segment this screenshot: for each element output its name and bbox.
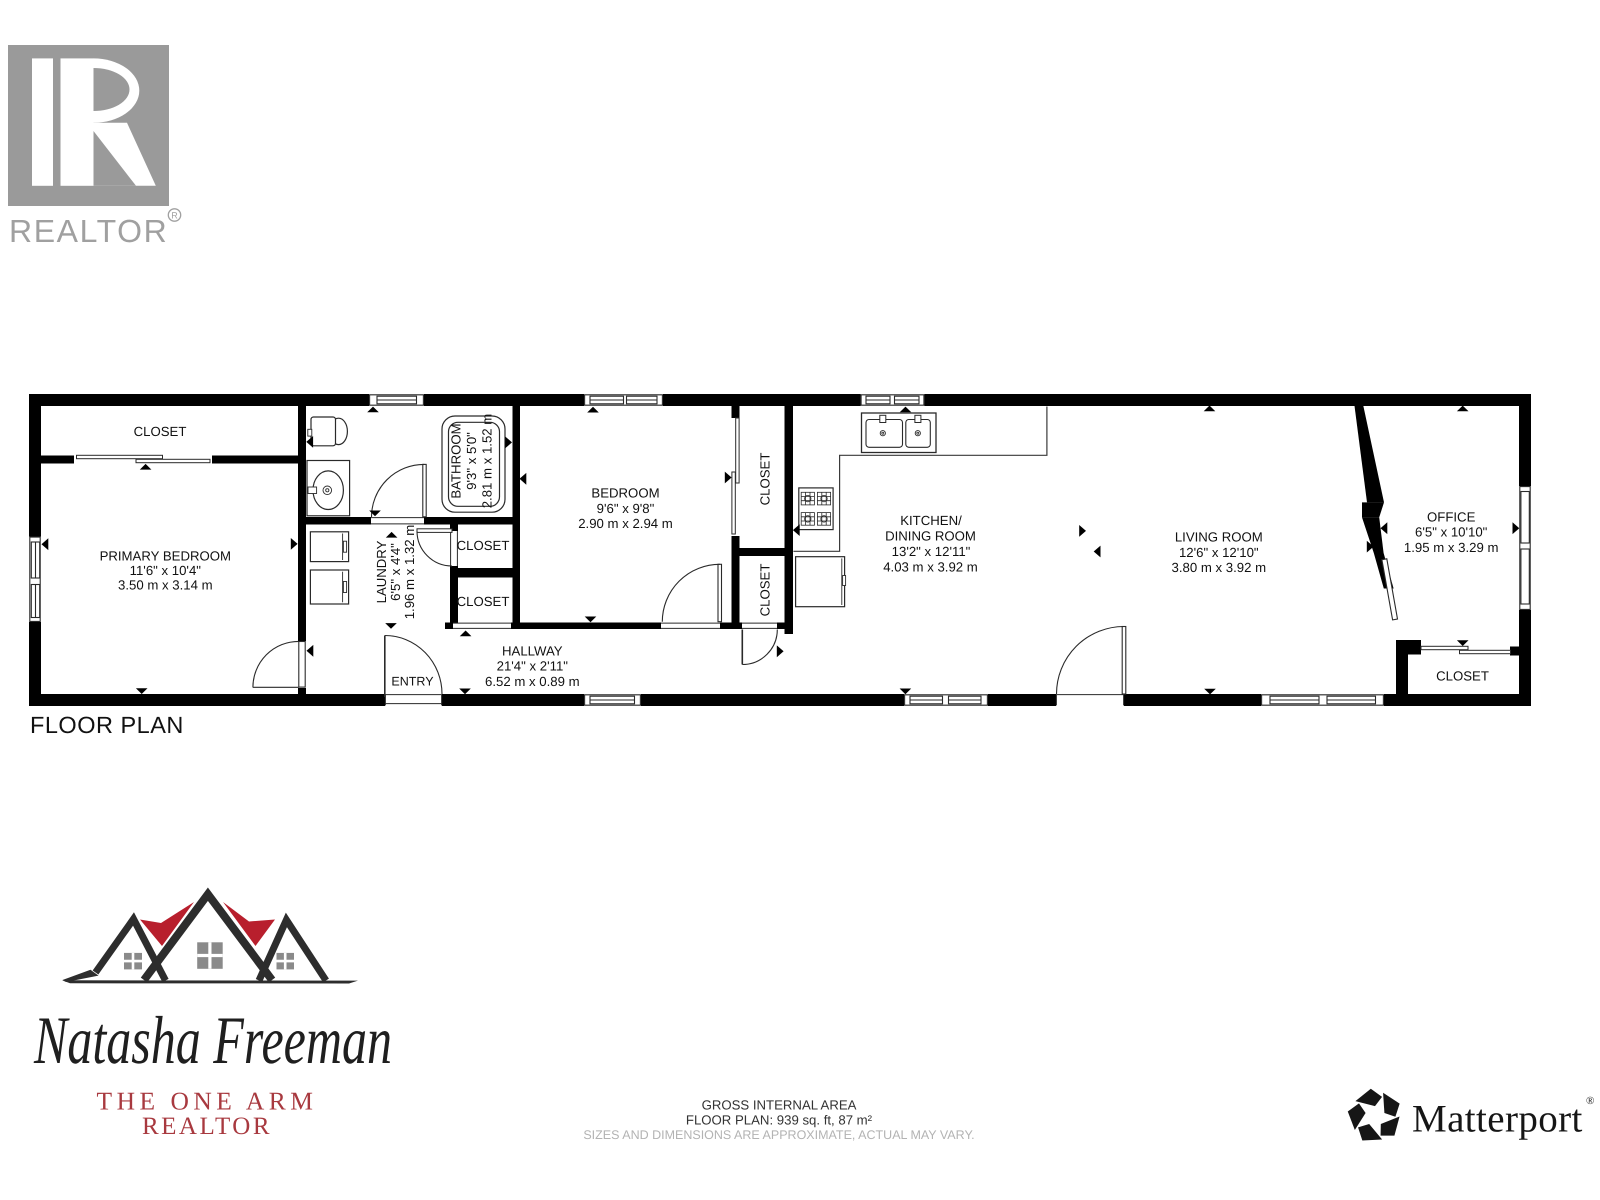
svg-text:6'5" x 4'4": 6'5" x 4'4" (388, 543, 403, 601)
svg-text:13'2" x 12'11": 13'2" x 12'11" (892, 544, 971, 559)
svg-text:KITCHEN/: KITCHEN/ (900, 513, 962, 528)
svg-text:2.81 m x 1.52 m: 2.81 m x 1.52 m (479, 414, 494, 509)
svg-text:1.96 m x 1.32 m: 1.96 m x 1.32 m (402, 525, 417, 620)
svg-text:Matterport: Matterport (1412, 1098, 1583, 1141)
svg-text:PRIMARY BEDROOM: PRIMARY BEDROOM (100, 548, 231, 563)
svg-text:CLOSET: CLOSET (134, 424, 187, 439)
svg-text:®: ® (1586, 1095, 1594, 1107)
svg-text:CLOSET: CLOSET (758, 564, 773, 617)
svg-text:LAUNDRY: LAUNDRY (374, 540, 389, 603)
svg-text:REALTOR: REALTOR (142, 1113, 272, 1140)
svg-text:FLOOR PLAN: FLOOR PLAN (30, 712, 184, 738)
svg-text:BATHROOM: BATHROOM (448, 423, 463, 498)
svg-text:1.95 m x 3.29 m: 1.95 m x 3.29 m (1404, 540, 1499, 555)
svg-text:CLOSET: CLOSET (1436, 669, 1489, 684)
svg-text:CLOSET: CLOSET (758, 453, 773, 506)
svg-text:6.52 m x 0.89 m: 6.52 m x 0.89 m (485, 674, 580, 689)
svg-text:THE ONE ARM: THE ONE ARM (97, 1087, 318, 1116)
svg-text:3.50 m x 3.14 m: 3.50 m x 3.14 m (118, 578, 213, 593)
svg-text:REALTOR: REALTOR (9, 213, 168, 249)
svg-text:3.80 m x 3.92 m: 3.80 m x 3.92 m (1172, 560, 1267, 575)
svg-text:12'6" x 12'10": 12'6" x 12'10" (1179, 545, 1259, 560)
svg-text:CLOSET: CLOSET (457, 538, 510, 553)
svg-text:LIVING ROOM: LIVING ROOM (1175, 530, 1263, 545)
svg-text:CLOSET: CLOSET (457, 594, 510, 609)
svg-text:HALLWAY: HALLWAY (502, 644, 563, 659)
svg-text:9'3" x 5'0": 9'3" x 5'0" (464, 432, 479, 490)
svg-text:SIZES AND DIMENSIONS ARE APPRO: SIZES AND DIMENSIONS ARE APPROXIMATE, AC… (583, 1128, 974, 1142)
svg-text:11'6" x 10'4": 11'6" x 10'4" (130, 563, 202, 578)
svg-text:Natasha Freeman: Natasha Freeman (33, 1002, 392, 1078)
svg-text:OFFICE: OFFICE (1427, 510, 1476, 525)
svg-text:DINING ROOM: DINING ROOM (885, 528, 976, 543)
svg-text:BEDROOM: BEDROOM (591, 486, 659, 501)
svg-text:ENTRY: ENTRY (391, 675, 434, 689)
svg-text:FLOOR PLAN: 939 sq. ft, 87 m²: FLOOR PLAN: 939 sq. ft, 87 m² (686, 1113, 873, 1128)
svg-text:R: R (171, 211, 178, 221)
svg-text:9'6" x 9'8": 9'6" x 9'8" (597, 501, 655, 516)
svg-text:4.03 m x 3.92 m: 4.03 m x 3.92 m (883, 559, 978, 574)
svg-text:6'5" x 10'10": 6'5" x 10'10" (1415, 525, 1488, 540)
svg-text:21'4" x 2'11": 21'4" x 2'11" (497, 659, 569, 674)
svg-text:GROSS INTERNAL AREA: GROSS INTERNAL AREA (702, 1098, 857, 1113)
svg-text:2.90 m x 2.94 m: 2.90 m x 2.94 m (578, 516, 673, 531)
